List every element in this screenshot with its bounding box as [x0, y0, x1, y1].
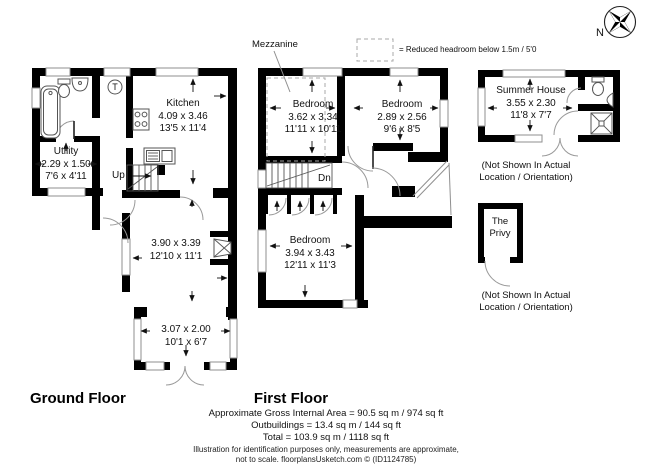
- utility-label: Utility 2.29 x 1.50 7'6 x 4'11: [41, 146, 90, 184]
- room-dim-metric: 3.07 x 2.00: [161, 324, 210, 337]
- hall-door-arc: [110, 200, 135, 225]
- window: [32, 88, 40, 108]
- window: [303, 68, 342, 76]
- window: [146, 362, 164, 370]
- privy-note: (Not Shown In Actual Location / Orientat…: [479, 290, 572, 314]
- window: [230, 319, 237, 358]
- summer-house-label: Summer House 3.55 x 2.30 11'8 x 7'7: [496, 85, 565, 123]
- room-dim-metric: 3.62 x 3.34: [285, 112, 342, 125]
- privy-door-arc: [485, 261, 510, 286]
- footer-disclaimer-line1: Illustration for identification purposes…: [193, 445, 459, 454]
- window: [258, 170, 266, 188]
- compass-north-label: N: [596, 27, 604, 39]
- window: [156, 68, 198, 76]
- summer-house-note: (Not Shown In Actual Location / Orientat…: [479, 160, 572, 184]
- footer-outbuildings-line: Outbuildings = 13.4 sq m / 144 sq ft: [251, 420, 401, 431]
- landing-door-arc: [342, 162, 368, 188]
- room-name: Summer House: [496, 85, 565, 98]
- window: [258, 230, 266, 272]
- window: [440, 100, 448, 127]
- room-dim-imperial: 13'5 x 11'4: [158, 123, 207, 136]
- footer-disclaimer-line2: not to scale. floorplansUsketch.com © (I…: [236, 455, 417, 464]
- room-name: Bedroom: [284, 235, 336, 248]
- room-dim-metric: 3.94 x 3.43: [284, 248, 336, 261]
- window: [515, 135, 542, 142]
- shower-icon: [591, 113, 612, 134]
- bedroom2-label: Bedroom 2.89 x 2.56 9'6 x 8'5: [377, 99, 426, 137]
- window: [478, 88, 485, 126]
- room-dim-imperial: 11'11 x 10'11: [285, 124, 342, 137]
- window: [210, 362, 226, 370]
- room-dim-imperial: 12'10 x 11'1: [150, 251, 203, 264]
- hob-icon: [133, 109, 149, 130]
- window: [48, 188, 85, 196]
- footer-total-line: Total = 103.9 sq m / 1118 sq ft: [263, 432, 389, 443]
- summer-house-door-right: [560, 138, 578, 156]
- room-dim-imperial: 10'1 x 6'7: [161, 337, 210, 350]
- fireplace-stub-top: [210, 231, 230, 237]
- window: [390, 68, 418, 76]
- room-dim-metric: 3.90 x 3.39: [150, 238, 203, 251]
- window: [343, 300, 357, 308]
- floorplan-canvas: Mezzanine = Reduced headroom below 1.5m …: [0, 0, 650, 469]
- room-dim-imperial: 11'8 x 7'7: [496, 110, 565, 123]
- wc-door-arc: [567, 88, 581, 103]
- window: [503, 70, 565, 77]
- wardrobes: [264, 195, 337, 215]
- room-name: Bedroom: [285, 99, 342, 112]
- basin-icon: [72, 78, 88, 91]
- diagonal-window: [413, 161, 451, 215]
- bathtub-icon: [41, 86, 60, 138]
- privy-label: The Privy: [489, 216, 510, 240]
- bedroom2-door-arc: [348, 146, 373, 171]
- room-name: Kitchen: [158, 98, 207, 111]
- window: [122, 239, 130, 275]
- kitchen-sink-icon: [144, 148, 175, 164]
- toilet-icon: [592, 77, 604, 96]
- compass-icon: [605, 7, 636, 38]
- room-dim-metric: 2.29 x 1.50: [41, 159, 90, 172]
- room-dim-metric: 3.55 x 2.30: [496, 98, 565, 111]
- toilet-icon: [58, 79, 70, 98]
- reduced-headroom-legend-label: = Reduced headroom below 1.5m / 5'0: [399, 45, 536, 54]
- thermostat-label: T: [112, 81, 118, 94]
- summer-house-door-left: [542, 138, 560, 156]
- kitchen-label: Kitchen 4.09 x 3.46 13'5 x 11'4: [158, 98, 207, 136]
- room-dim-metric: 2.89 x 2.56: [377, 112, 426, 125]
- ground-floor-title: Ground Floor: [30, 390, 126, 407]
- room-name: Utility: [41, 146, 90, 159]
- stairs-down-label: Dn: [318, 173, 331, 186]
- bedroom3-label: Bedroom 3.94 x 3.43 12'11 x 11'3: [284, 235, 336, 273]
- garden-room-label: 3.07 x 2.00 10'1 x 6'7: [161, 324, 210, 349]
- bedroom1-label: Bedroom 3.62 x 3.34 11'11 x 10'11: [285, 99, 342, 137]
- garden-french-door-right: [185, 366, 204, 385]
- mezzanine-label: Mezzanine: [252, 39, 298, 50]
- kitchen-door-arc: [180, 197, 203, 220]
- room-dim-imperial: 7'6 x 4'11: [41, 171, 90, 184]
- room-dim-imperial: 12'11 x 11'3: [284, 260, 336, 273]
- room-dim-imperial: 9'6 x 8'5: [377, 124, 426, 137]
- sitting-room-label: 3.90 x 3.39 12'10 x 11'1: [150, 238, 203, 263]
- window: [104, 68, 130, 76]
- fireplace-icon: [214, 239, 231, 257]
- footer-area-line: Approximate Gross Internal Area = 90.5 s…: [209, 408, 444, 419]
- first-floor-title: First Floor: [254, 390, 328, 407]
- room-dim-metric: 4.09 x 3.46: [158, 111, 207, 124]
- window: [46, 68, 70, 76]
- stairs-up-label: Up: [112, 170, 125, 183]
- room-name: Bedroom: [377, 99, 426, 112]
- window: [134, 319, 141, 360]
- reduced-headroom-legend-box: [357, 39, 393, 61]
- fireplace-stub-bottom: [210, 259, 230, 265]
